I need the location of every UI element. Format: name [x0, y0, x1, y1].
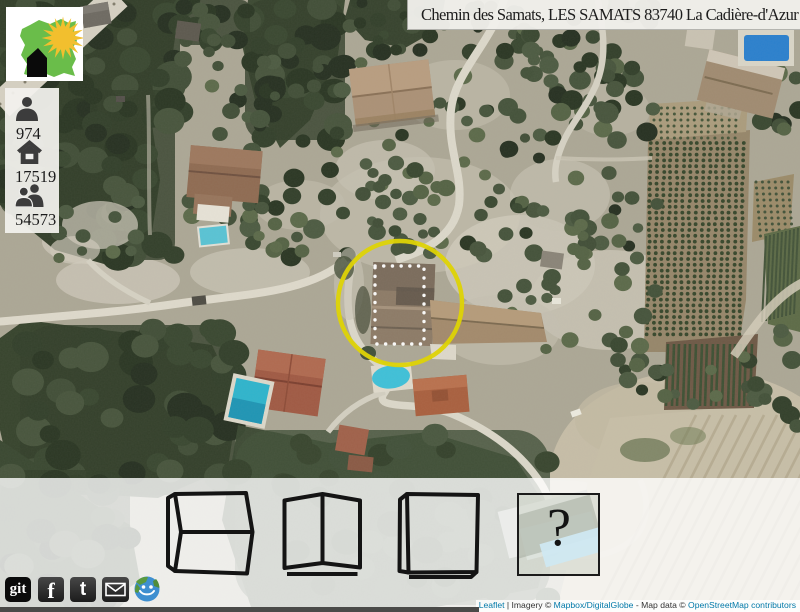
svg-text:?: ? [547, 497, 571, 557]
